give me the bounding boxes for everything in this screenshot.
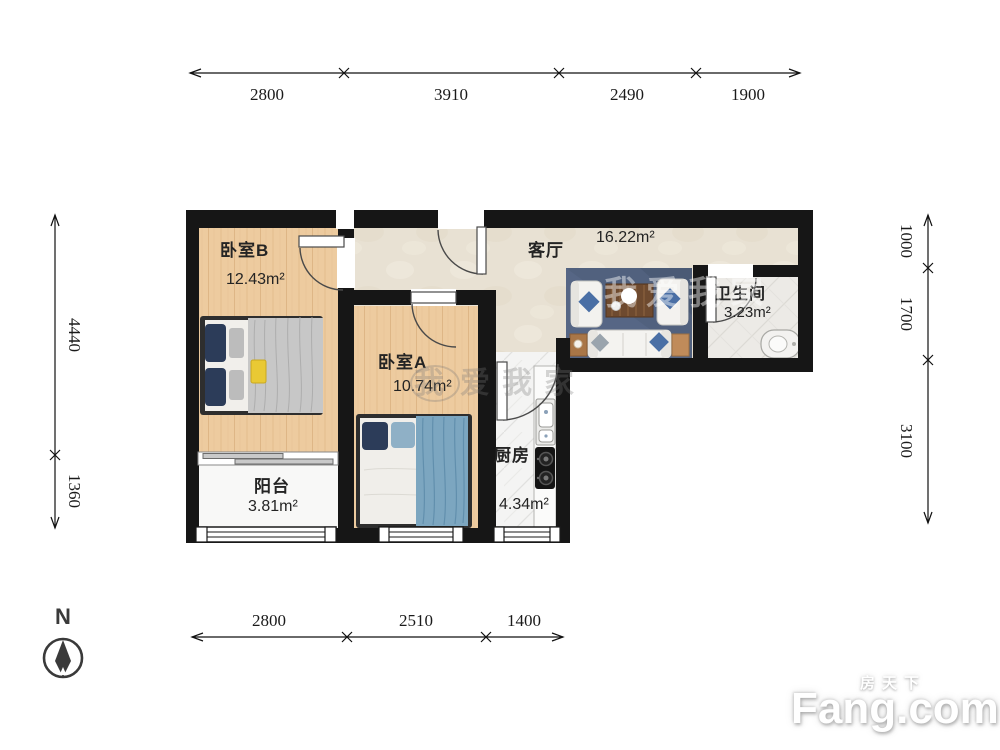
bed-single-bedroomA bbox=[356, 414, 472, 528]
dim-top-4: 1900 bbox=[731, 85, 765, 105]
bathtub bbox=[761, 330, 800, 358]
kitchen-area: 4.34m² bbox=[499, 496, 549, 514]
bed-double-bedroomB bbox=[200, 316, 323, 415]
compass-north-label: N bbox=[55, 604, 71, 630]
living-area: 16.22m² bbox=[596, 229, 655, 247]
balcony-window bbox=[196, 527, 336, 542]
dim-bottom-2: 2510 bbox=[399, 611, 433, 631]
brand-watermark-en: Fang.com bbox=[791, 684, 999, 734]
compass bbox=[44, 639, 82, 677]
kitchen-window bbox=[494, 527, 560, 542]
floorplan-page: 卧室B 12.43m² 客厅 16.22m² 卫生间 3.23m² 卧室A 10… bbox=[0, 0, 1000, 750]
dim-top-3: 2490 bbox=[610, 85, 644, 105]
dim-bottom-1: 2800 bbox=[252, 611, 286, 631]
dim-top-1: 2800 bbox=[250, 85, 284, 105]
bedroomB-area: 12.43m² bbox=[226, 271, 285, 289]
dim-left-1: 4440 bbox=[64, 318, 84, 352]
dim-right-3: 3100 bbox=[896, 424, 916, 458]
bedroomB-label: 卧室B bbox=[220, 236, 269, 261]
agency-watermark-ring: 我 bbox=[410, 365, 460, 402]
agency-watermark-2: 我爱我家 bbox=[604, 266, 772, 314]
dim-right-2: 1700 bbox=[896, 297, 916, 331]
balcony-label: 阳台 bbox=[254, 472, 290, 497]
dim-bottom-3: 1400 bbox=[507, 611, 541, 631]
dim-right-1: 1000 bbox=[896, 224, 916, 258]
dim-top-2: 3910 bbox=[434, 85, 468, 105]
kitchen-label: 厨房 bbox=[494, 441, 530, 466]
balcony-sliding-door bbox=[198, 452, 338, 465]
dim-left-2: 1360 bbox=[64, 474, 84, 508]
agency-watermark: 我爱我家 bbox=[410, 358, 586, 402]
bedroomA-window bbox=[379, 527, 463, 542]
balcony-area: 3.81m² bbox=[248, 498, 298, 516]
living-label: 客厅 bbox=[528, 236, 564, 261]
